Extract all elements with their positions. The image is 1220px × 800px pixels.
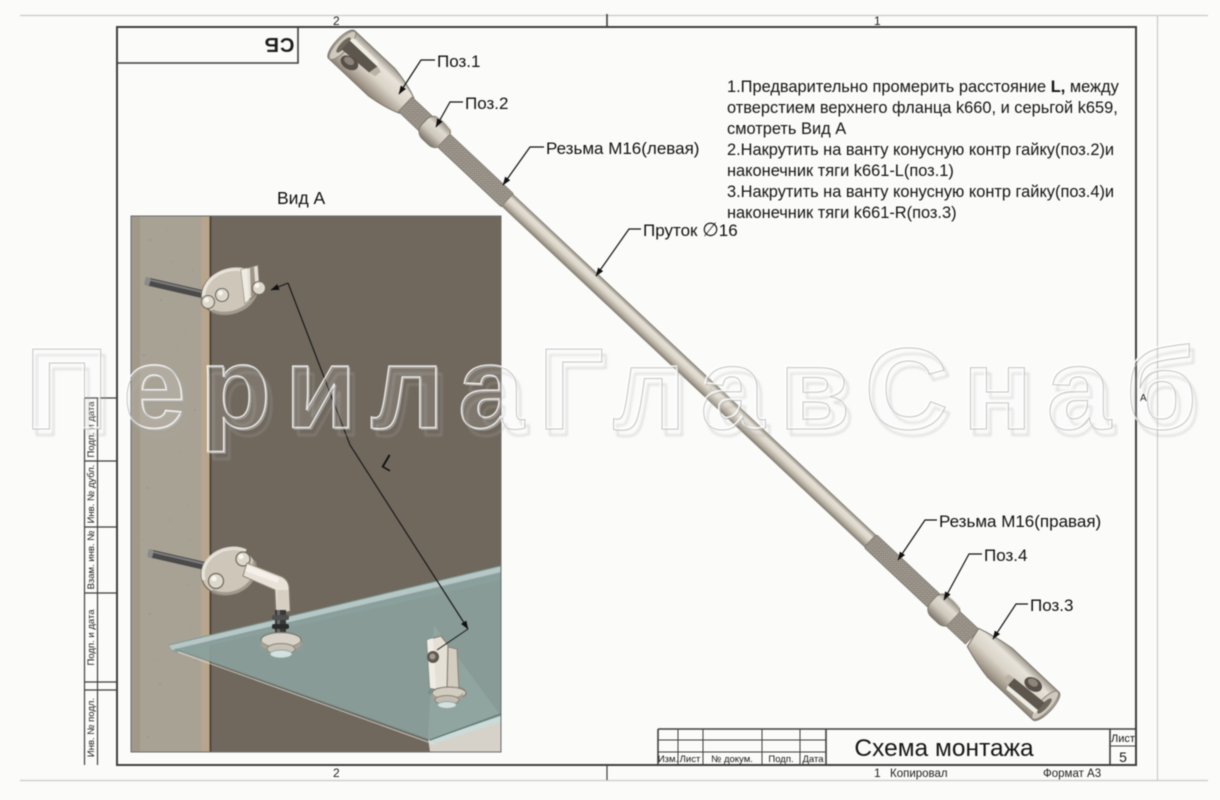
svg-text:смотреть Вид А: смотреть Вид А (727, 120, 846, 138)
svg-text:Подп.: Подп. (768, 754, 793, 765)
svg-text:№ докум.: № докум. (711, 754, 753, 765)
svg-text:Инв. № подл.: Инв. № подл. (86, 698, 97, 757)
svg-text:2.Накрутить на ванту конусную: 2.Накрутить на ванту конусную контр гайк… (727, 141, 1114, 159)
svg-text:Вид А: Вид А (277, 188, 326, 208)
svg-text:Инв. № дубл.: Инв. № дубл. (86, 465, 97, 524)
svg-text:Поз.3: Поз.3 (1030, 596, 1073, 615)
svg-text:5: 5 (1119, 749, 1127, 765)
svg-text:Изм.: Изм. (658, 754, 678, 765)
svg-text:Лист: Лист (680, 754, 701, 765)
svg-text:Резьма М16(левая): Резьма М16(левая) (546, 139, 699, 158)
svg-text:наконечник тяги k661-L(поз.1): наконечник тяги k661-L(поз.1) (727, 162, 954, 180)
svg-text:1.Предварительно промерить рас: 1.Предварительно промерить расстояние L,… (727, 78, 1120, 96)
svg-text:1: 1 (874, 14, 881, 28)
svg-text:Подп. и дата: Подп. и дата (86, 609, 97, 666)
svg-text:3.Накрутить на ванту конусную: 3.Накрутить на ванту конусную контр гайк… (727, 183, 1114, 201)
svg-text:1: 1 (874, 766, 881, 780)
svg-text:наконечник тяги k661-R(поз.3): наконечник тяги k661-R(поз.3) (727, 204, 957, 222)
svg-text:Пруток ∅16: Пруток ∅16 (643, 220, 738, 241)
svg-text:отверстием верхнего фланца k66: отверстием верхнего фланца k660, и серьг… (727, 99, 1118, 117)
svg-text:Поз.1: Поз.1 (437, 52, 480, 71)
svg-text:Поз.2: Поз.2 (465, 94, 508, 113)
svg-text:А: А (1140, 393, 1147, 404)
svg-text:СБ: СБ (264, 33, 295, 55)
svg-text:Поз.4: Поз.4 (984, 546, 1027, 565)
svg-text:Взам. инв. №: Взам. инв. № (86, 531, 97, 590)
svg-text:2: 2 (333, 14, 340, 28)
svg-text:Дата: Дата (802, 754, 824, 765)
svg-text:Резьма М16(правая): Резьма М16(правая) (939, 512, 1101, 531)
svg-text:2: 2 (333, 766, 340, 780)
svg-text:Формат А3: Формат А3 (1043, 768, 1101, 780)
svg-text:Лист: Лист (1111, 733, 1135, 745)
svg-text:Схема монтажа: Схема монтажа (854, 735, 1034, 762)
svg-text:Копировал: Копировал (890, 768, 948, 780)
